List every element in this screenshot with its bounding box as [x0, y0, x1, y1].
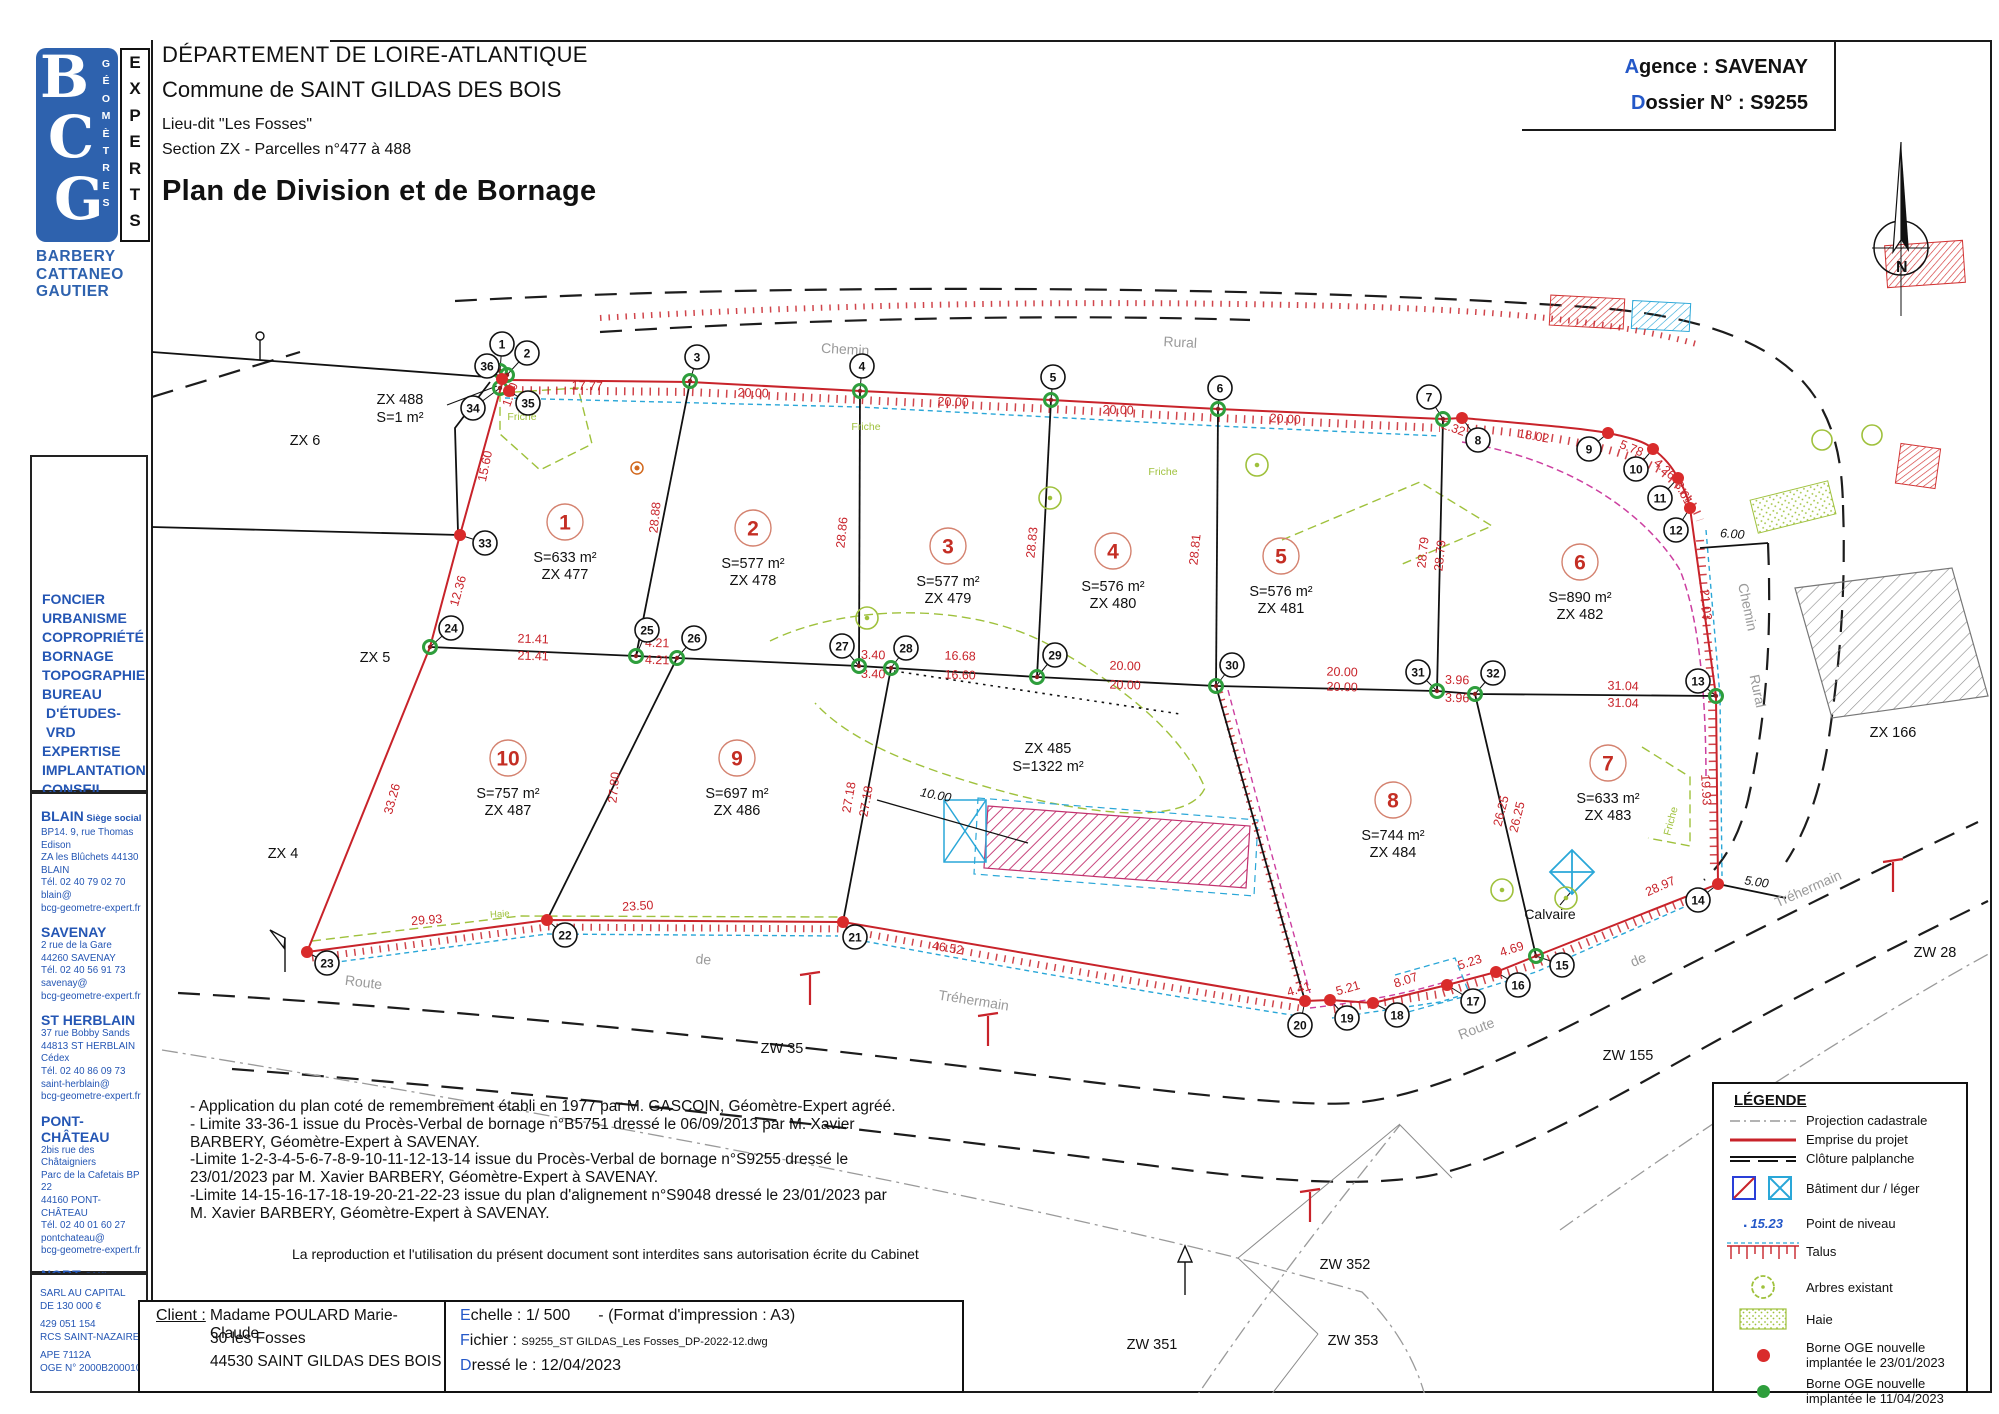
dimension-text: 28.86: [833, 516, 850, 549]
dimension-text: 5.00: [1744, 873, 1770, 890]
svg-text:S=697 m²: S=697 m²: [705, 786, 768, 802]
note-line: - Limite 33-36-1 issue du Procès-Verbal …: [190, 1116, 1130, 1134]
boundary-point-22: 22: [541, 914, 577, 947]
office-line: 37 rue Bobby Sands: [41, 1028, 146, 1041]
map-label: Friche: [1662, 805, 1681, 836]
svg-text:ZX 478: ZX 478: [730, 573, 777, 589]
dimension-text: 4.69: [1498, 939, 1526, 960]
scale-line: Echelle : 1/ 500- (Format d'impression :…: [460, 1307, 795, 1325]
svg-text:S=633 m²: S=633 m²: [1576, 791, 1639, 807]
svg-text:4: 4: [859, 360, 866, 374]
north-compass: N: [1856, 128, 1946, 323]
svg-text:6: 6: [1574, 552, 1586, 575]
logo-partner-names: BARBERY CATTANEO GAUTIER: [36, 248, 124, 301]
dimension-text: 8.07: [1392, 970, 1420, 991]
map-label: ZX 5: [360, 650, 391, 666]
palplanche-line-icon: [1720, 1155, 1806, 1163]
office-line: saint-herblain@: [41, 1079, 146, 1092]
map-label: Route: [344, 972, 383, 992]
office-line: 2bis rue des Châtaigniers: [41, 1145, 146, 1170]
svg-text:11: 11: [1654, 492, 1667, 506]
dimension-text: 4.21: [645, 653, 670, 668]
dimension-text: 31.04: [1607, 695, 1639, 710]
svg-text:9: 9: [1586, 443, 1593, 457]
svg-text:7: 7: [1602, 753, 1614, 776]
legend-box: LÉGENDE Projection cadastrale Emprise du…: [1712, 1082, 1968, 1393]
note-line: 23/01/2023 par M. Xavier BARBERY, Géomèt…: [190, 1169, 1130, 1187]
legend-title: LÉGENDE: [1734, 1092, 1966, 1109]
svg-text:S=757 m²: S=757 m²: [476, 786, 539, 802]
svg-text:16: 16: [1511, 979, 1525, 993]
parcel-label-8: 8S=744 m²ZX 484: [1361, 782, 1424, 861]
svg-text:ZX 487: ZX 487: [485, 803, 532, 819]
boundary-point-16: 16: [1490, 966, 1530, 997]
logo-letter-c: C: [48, 108, 94, 166]
office-line: bcg-geometre-expert.fr: [41, 991, 146, 1004]
file-name: S9255_ST GILDAS_Les Fosses_DP-2022-12.dw…: [521, 1336, 767, 1348]
legend-item-emprise: Emprise du projet: [1720, 1132, 1966, 1147]
dimension-text: 20.00: [1269, 411, 1301, 427]
svg-text:34: 34: [466, 402, 480, 416]
map-label: Rural: [1163, 333, 1197, 351]
svg-text:9: 9: [731, 748, 743, 771]
parcel-label-3: 3S=577 m²ZX 479: [916, 528, 979, 607]
svg-text:24: 24: [444, 622, 458, 636]
file-line: Fichier : S9255_ST GILDAS_Les Fosses_DP-…: [460, 1332, 768, 1350]
top-left-dashed: [152, 352, 300, 397]
legend-item-batiment: Bâtiment dur / léger: [1720, 1176, 1966, 1200]
dimension-text: 21.41: [517, 648, 549, 663]
svg-text:7: 7: [1426, 391, 1433, 405]
client-address2: 44530 SAINT GILDAS DES BOIS: [210, 1353, 441, 1371]
map-label: ZW 35: [761, 1041, 804, 1057]
dimension-text: 20.00: [1102, 402, 1134, 417]
map-label: ZX 166: [1870, 725, 1917, 741]
map-label: ZW 28: [1914, 945, 1957, 961]
reproduction-notice: La reproduction et l'utilisation du prés…: [292, 1246, 919, 1262]
office-line: bcg-geometre-expert.fr: [41, 903, 146, 916]
top-road-inner: [600, 317, 1250, 332]
parcel-label-4: 4S=576 m²ZX 480: [1081, 533, 1144, 612]
svg-text:5: 5: [1275, 546, 1287, 569]
building-icons: [1720, 1176, 1806, 1200]
boundary-point-13: 13: [1686, 669, 1723, 703]
svg-text:S=633 m²: S=633 m²: [533, 550, 596, 566]
office-line: savenay@: [41, 978, 146, 991]
dossier-number: Dossier N° : S9255: [1508, 92, 1808, 115]
svg-text:29: 29: [1048, 649, 1062, 663]
map-label: Friche: [1148, 466, 1177, 478]
office-line: Tél. 02 40 56 91 73: [41, 965, 146, 978]
tree-icon: [1720, 1272, 1806, 1302]
svg-text:ZX 480: ZX 480: [1090, 596, 1137, 612]
map-label: Haie: [490, 908, 510, 920]
office-line: blain@: [41, 890, 146, 903]
service-item: FONCIER: [32, 590, 146, 609]
svg-text:3: 3: [694, 351, 701, 365]
svg-text:12: 12: [1669, 524, 1683, 538]
dimension-text: 12.36: [447, 574, 469, 608]
svg-text:13: 13: [1691, 675, 1705, 689]
office-pont-chateau: PONT-CHÂTEAU 2bis rue des Châtaigniers P…: [41, 1113, 146, 1258]
legend-item-palplanche: Clôture palplanche: [1720, 1151, 1966, 1166]
company-line: SARL AU CAPITAL: [40, 1287, 146, 1300]
dimension-text: 28.97: [1643, 874, 1677, 900]
boundary-point-21: 21: [837, 916, 867, 949]
company-line: 429 051 154: [40, 1318, 146, 1331]
svg-text:10: 10: [1629, 463, 1643, 477]
svg-text:25: 25: [640, 624, 654, 638]
svg-text:22: 22: [558, 929, 572, 943]
svg-text:36: 36: [480, 360, 494, 374]
client-address1: 30 les Fosses: [210, 1330, 306, 1348]
svg-text:S=890 m²: S=890 m²: [1548, 590, 1611, 606]
svg-text:2: 2: [747, 518, 759, 541]
print-format: - (Format d'impression : A3): [598, 1307, 795, 1324]
offices-box: BLAIN Siège social BP14. 9, rue Thomas E…: [30, 792, 148, 1273]
note-line: - Application du plan coté de remembreme…: [190, 1098, 1130, 1116]
scale-box: Echelle : 1/ 500- (Format d'impression :…: [444, 1300, 964, 1393]
dimension-text: 16.68: [944, 648, 976, 663]
partner-name: CATTANEO: [36, 266, 124, 284]
dimension-text: 31.04: [1607, 678, 1639, 693]
map-label: Tréhermain: [1772, 867, 1843, 911]
dimension-text: 15.60: [475, 449, 495, 483]
middle-line: [430, 647, 1716, 696]
svg-text:10: 10: [496, 748, 519, 771]
client-box: Client : Madame POULARD Marie-Claude 30 …: [138, 1300, 446, 1393]
dimension-text: 28.79: [1414, 536, 1431, 569]
parcel-label-5: 5S=576 m²ZX 481: [1249, 538, 1312, 617]
svg-text:1: 1: [559, 512, 571, 535]
dimension-text: 27.18: [839, 781, 858, 814]
svg-text:31: 31: [1411, 666, 1425, 680]
map-label: ZX 4: [268, 846, 299, 862]
light-annex: [944, 800, 986, 862]
svg-text:17: 17: [1466, 995, 1480, 1009]
green-borne-icon: [1720, 1385, 1806, 1398]
dimension-text: 28.79: [1431, 539, 1448, 572]
office-line: ZA les Blûchets 44130 BLAIN: [41, 852, 146, 877]
dimension-text: 20.00: [1326, 679, 1358, 694]
map-label: Calvaire: [1524, 906, 1576, 922]
svg-text:27: 27: [835, 640, 849, 654]
dimension-text: 21.41: [517, 631, 549, 646]
company-line: DE 130 000 €: [40, 1300, 146, 1313]
legend-item-borne-red: Borne OGE nouvelleimplantée le 23/01/202…: [1720, 1340, 1966, 1370]
dimension-text: 20.00: [1326, 664, 1358, 679]
agence-label: Agence : SAVENAY: [1508, 56, 1808, 79]
svg-text:ZX 485: ZX 485: [1025, 741, 1072, 757]
svg-text:ZX 481: ZX 481: [1258, 601, 1305, 617]
dimension-text: 16.60: [944, 667, 976, 682]
office-line: Tél. 02 40 86 09 73: [41, 1066, 146, 1079]
service-item: URBANISME: [32, 609, 146, 628]
svg-text:19: 19: [1340, 1012, 1354, 1026]
map-label: Rural: [1747, 673, 1770, 709]
office-suffix: Siège social: [84, 813, 142, 824]
partner-name: BARBERY: [36, 248, 124, 266]
map-label: Tréhermain: [937, 987, 1010, 1014]
parcel-label-6: 6S=890 m²ZX 482: [1548, 544, 1611, 623]
svg-text:30: 30: [1225, 659, 1239, 673]
dimension-text: 5.78: [1618, 437, 1646, 459]
office-name: ST HERBLAIN: [41, 1012, 135, 1028]
svg-text:18: 18: [1390, 1009, 1404, 1023]
office-line: 44160 PONT-CHÂTEAU: [41, 1195, 146, 1220]
map-label: ZW 351: [1127, 1337, 1178, 1353]
office-blain: BLAIN Siège social BP14. 9, rue Thomas E…: [41, 808, 146, 915]
red-borne-icon: [1720, 1349, 1806, 1362]
office-line: 2 rue de la Gare: [41, 940, 146, 953]
dimension-text: 23.50: [622, 898, 654, 914]
dimension-text: 18.02: [1517, 426, 1550, 445]
svg-text:S=577 m²: S=577 m²: [721, 556, 784, 572]
svg-text:6: 6: [1217, 382, 1224, 396]
svg-text:23: 23: [320, 957, 334, 971]
dimension-text: 19.93: [1698, 774, 1714, 806]
office-line: 44813 ST HERBLAIN Cédex: [41, 1041, 146, 1066]
dimension-text: 6.00: [1720, 526, 1745, 542]
map-label: Route: [1456, 1014, 1497, 1042]
date-line: Dressé le : 12/04/2023: [460, 1357, 621, 1375]
central-hard-building: [984, 806, 1250, 888]
svg-text:S=577 m²: S=577 m²: [916, 574, 979, 590]
parcel-label-10: 10S=757 m²ZX 487: [476, 740, 539, 819]
emprise-loop: [307, 380, 1718, 1003]
talus-icon: [1720, 1240, 1806, 1262]
dimension-text: 3.96: [1445, 691, 1470, 706]
logo-letter-g: G: [54, 170, 104, 228]
svg-text:ZX 482: ZX 482: [1557, 607, 1604, 623]
svg-text:14: 14: [1691, 894, 1705, 908]
project-line-icon: [1720, 1137, 1806, 1143]
top-strip-red: [1549, 295, 1624, 329]
note-line: M. Xavier BARBERY, Géomètre-Expert à SAV…: [190, 1205, 1130, 1223]
svg-text:21: 21: [848, 931, 862, 945]
note-line: -Limite 1-2-3-4-5-6-7-8-9-10-11-12-13-14…: [190, 1151, 1130, 1169]
office-line: BP14. 9, rue Thomas Edison: [41, 827, 146, 852]
office-line: Tél. 02 40 79 02 70: [41, 877, 146, 890]
dimension-text: 10.00: [919, 785, 952, 805]
svg-text:S=1322 m²: S=1322 m²: [1012, 759, 1084, 775]
map-label: ZW 353: [1328, 1333, 1379, 1349]
logo-letter-b: B: [40, 48, 89, 106]
boundary-point-14: 14: [1686, 878, 1724, 912]
dimension-text: 27.18: [856, 785, 875, 818]
company-line: RCS SAINT-NAZAIRE: [40, 1331, 146, 1344]
svg-text:35: 35: [521, 397, 535, 411]
svg-text:32: 32: [1486, 667, 1500, 681]
map-label: ZW 352: [1320, 1257, 1371, 1273]
svg-text:8: 8: [1387, 790, 1399, 813]
boundary-point-17: 17: [1441, 979, 1485, 1013]
logo-blue-square: B C G G É O M È T R E S: [36, 48, 118, 242]
map-label: de: [1628, 949, 1649, 970]
svg-text:S=1 m²: S=1 m²: [376, 410, 423, 426]
dimension-text: 20.00: [1109, 677, 1141, 692]
svg-text:26: 26: [687, 632, 701, 646]
svg-text:28: 28: [899, 642, 913, 656]
service-item: TOPOGRAPHIE: [32, 666, 146, 685]
svg-text:ZX 486: ZX 486: [714, 803, 761, 819]
client-label: Client :: [156, 1307, 206, 1325]
parcel-label-7: 7S=633 m²ZX 483: [1576, 745, 1639, 824]
partner-name: GAUTIER: [36, 283, 124, 301]
svg-text:20: 20: [1293, 1019, 1307, 1033]
boundary-notes: - Application du plan coté de remembreme…: [190, 1098, 1130, 1223]
boundary-point-33: 33: [454, 529, 497, 555]
right-small-structure: [1895, 443, 1940, 488]
office-name: BLAIN: [41, 808, 84, 824]
service-item: BORNAGE: [32, 647, 146, 666]
map-label: Friche: [851, 421, 880, 433]
legend-item-arbres: Arbres existant: [1720, 1272, 1966, 1302]
dimension-text: 5.23: [1456, 952, 1484, 973]
logo-geometres-text: G É O M È T R E S: [98, 56, 114, 213]
zone-label: ZX 488S=1 m²: [376, 392, 423, 426]
note-line: -Limite 14-15-16-17-18-19-20-21-22-23 is…: [190, 1187, 1130, 1205]
hedge-patch: [1750, 481, 1836, 533]
svg-text:ZX 479: ZX 479: [925, 591, 972, 607]
title-block: DÉPARTEMENT DE LOIRE-ATLANTIQUE Commune …: [162, 42, 596, 208]
map-label: ZX 6: [290, 433, 321, 449]
boundary-point-19: 19: [1324, 994, 1359, 1030]
office-line: pontchateau@: [41, 1233, 146, 1246]
map-label: de: [695, 950, 712, 967]
service-item: IMPLANTATION: [32, 761, 146, 780]
top-strip-blue: [1631, 301, 1690, 332]
legend-item-borne-green: Borne OGE nouvelleimplantée le 11/04/202…: [1720, 1376, 1966, 1406]
boundary-point-20: 20: [1288, 995, 1312, 1037]
svg-text:ZX 488: ZX 488: [377, 392, 424, 408]
north-letter: N: [1896, 259, 1908, 276]
zone-label: ZX 485S=1322 m²: [1012, 741, 1084, 775]
svg-text:ZX 483: ZX 483: [1585, 808, 1632, 824]
svg-text:33: 33: [478, 537, 492, 551]
cadastral-line-icon: [1720, 1118, 1806, 1124]
dimension-text: 20.00: [937, 394, 969, 409]
logo-experts-text: E X P E R T S: [120, 48, 150, 242]
dimension-text: 20.00: [1109, 658, 1141, 673]
project-boundary: [307, 380, 1718, 1003]
office-name: SAVENAY: [41, 924, 106, 940]
svg-text:S=744 m²: S=744 m²: [1361, 828, 1424, 844]
svg-text:8: 8: [1475, 434, 1482, 448]
commune-title: Commune de SAINT GILDAS DES BOIS: [162, 77, 596, 103]
level-point-icon: .15.23: [1720, 1214, 1806, 1232]
office-st-herblain: ST HERBLAIN 37 rue Bobby Sands 44813 ST …: [41, 1012, 146, 1104]
svg-text:1: 1: [499, 338, 506, 352]
parcel-label-1: 1S=633 m²ZX 477: [533, 504, 596, 583]
lieu-dit: Lieu-dit "Les Fosses": [162, 116, 596, 134]
service-item: BUREAU: [32, 685, 146, 704]
plan-title: Plan de Division et de Bornage: [162, 175, 596, 208]
office-savenay: SAVENAY 2 rue de la Gare 44260 SAVENAY T…: [41, 924, 146, 1003]
office-line: bcg-geometre-expert.fr: [41, 1245, 146, 1258]
dimension-text: 17.77: [571, 378, 603, 393]
hedge-icon: [1720, 1308, 1806, 1330]
dimension-text: 29.93: [411, 912, 443, 928]
dimension-text: 21.03: [1697, 588, 1714, 621]
dimension-text: 5.21: [1334, 978, 1361, 998]
dimension-text: 33.26: [381, 782, 403, 816]
services-box: FONCIER URBANISME COPROPRIÉTÉ BORNAGE TO…: [30, 455, 148, 792]
svg-text:S=576 m²: S=576 m²: [1249, 584, 1312, 600]
parcel-label-2: 2S=577 m²ZX 478: [721, 510, 784, 589]
svg-text:ZX 484: ZX 484: [1370, 845, 1417, 861]
note-line: BARBERY, Géomètre-Expert à SAVENAY.: [190, 1134, 1130, 1152]
svg-text:3: 3: [942, 536, 954, 559]
service-item: COPROPRIÉTÉ: [32, 628, 146, 647]
legend-item-cadastral: Projection cadastrale: [1720, 1113, 1966, 1128]
section-parcelles: Section ZX - Parcelles n°477 à 488: [162, 141, 596, 159]
office-name: PONT-CHÂTEAU: [41, 1113, 109, 1145]
dimension-text: 28.81: [1186, 533, 1203, 566]
svg-text:ZX 477: ZX 477: [542, 567, 589, 583]
company-line: APE 7112A: [40, 1349, 146, 1362]
legend-item-talus: Talus: [1720, 1240, 1966, 1262]
svg-text:4: 4: [1107, 541, 1119, 564]
right-gray-building: [1795, 568, 1988, 718]
office-line: Tél. 02 40 01 60 27: [41, 1220, 146, 1233]
svg-text:S=576 m²: S=576 m²: [1081, 579, 1144, 595]
legend-item-haie: Haie: [1720, 1308, 1966, 1330]
company-info-box: SARL AU CAPITAL DE 130 000 € 429 051 154…: [30, 1273, 148, 1393]
buildings: [944, 240, 1988, 896]
dimension-text: 20.00: [737, 385, 769, 400]
survey-plan-sheet: ZX 485S=1322 m²ZX 488S=1 m²17.7720.0020.…: [0, 0, 1999, 1414]
svg-text:2: 2: [524, 347, 531, 361]
office-line: Parc de la Cafetais BP 22: [41, 1170, 146, 1195]
calvaire-symbol: [1550, 850, 1594, 894]
map-label: Chemin: [1735, 582, 1761, 633]
svg-text:5: 5: [1050, 371, 1057, 385]
orange-target: [631, 462, 643, 474]
legend-item-niveau: .15.23 Point de niveau: [1720, 1214, 1966, 1232]
map-label: ZW 155: [1603, 1048, 1654, 1064]
dimension-text: 27.80: [605, 771, 622, 804]
dimension-text: 28.83: [1023, 526, 1040, 559]
dimension-text: 3.96: [1445, 673, 1470, 688]
parcel-label-9: 9S=697 m²ZX 486: [705, 740, 768, 819]
service-item: D'ÉTUDES-VRD: [32, 704, 146, 742]
service-item: EXPERTISE: [32, 742, 146, 761]
department-title: DÉPARTEMENT DE LOIRE-ATLANTIQUE: [162, 42, 596, 68]
office-line: bcg-geometre-expert.fr: [41, 1091, 146, 1104]
svg-text:15: 15: [1555, 959, 1569, 973]
company-line: OGE N° 2000B200010: [40, 1362, 146, 1375]
office-line: 44260 SAVENAY: [41, 953, 146, 966]
